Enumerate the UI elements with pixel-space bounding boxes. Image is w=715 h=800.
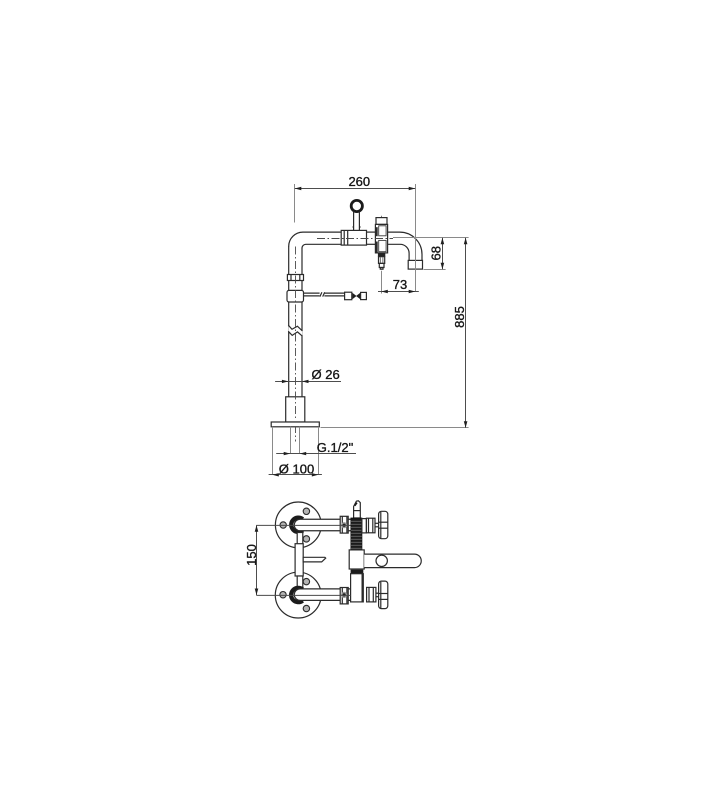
- svg-text:260: 260: [348, 174, 370, 189]
- svg-text:73: 73: [393, 277, 407, 292]
- svg-text:885: 885: [452, 306, 467, 328]
- svg-text:G.1/2": G.1/2": [317, 440, 354, 455]
- svg-text:150: 150: [244, 544, 259, 566]
- svg-text:Ø 26: Ø 26: [312, 367, 340, 382]
- svg-text:68: 68: [429, 246, 444, 260]
- svg-text:Ø 100: Ø 100: [279, 461, 314, 476]
